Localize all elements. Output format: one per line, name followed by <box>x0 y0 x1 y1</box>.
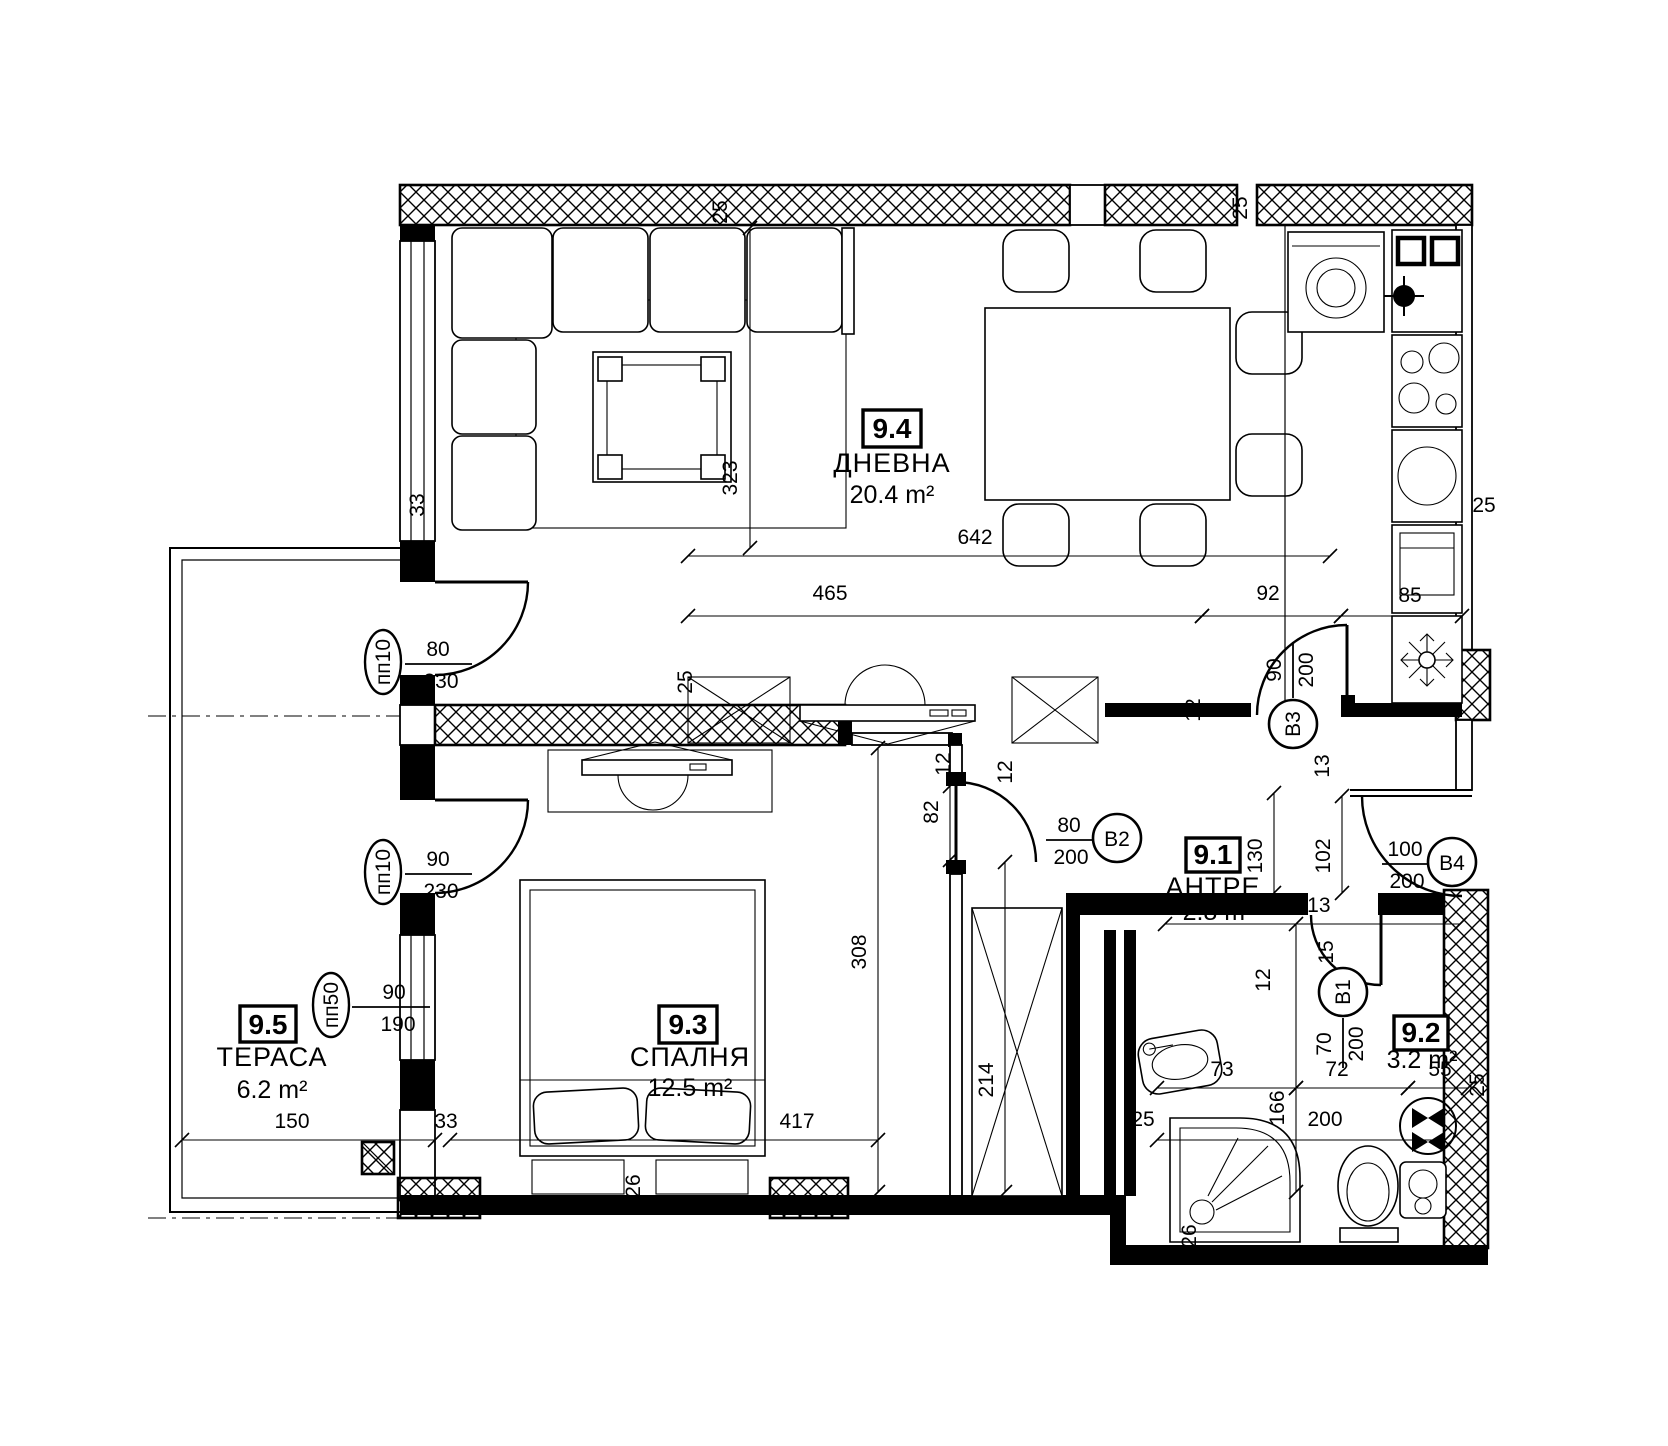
nightstand <box>532 1160 624 1194</box>
tag-height: 230 <box>423 670 458 693</box>
bottom-pier-left <box>398 1178 480 1218</box>
tag-id: пп10 <box>372 849 395 895</box>
dim-label: 12 <box>1143 894 1166 917</box>
tag-height: 200 <box>1295 652 1318 687</box>
dim-label: 55 <box>1428 1058 1451 1081</box>
room-id: 9.4 <box>873 413 912 444</box>
chair <box>1003 230 1069 292</box>
dim-label: 12 <box>1182 698 1205 721</box>
tag-id: B3 <box>1282 711 1305 737</box>
door-tag-b1: B1 70 200 <box>1313 968 1368 1068</box>
stove-icon <box>1392 335 1462 427</box>
dim-label: 417 <box>779 1110 814 1133</box>
tag-id: пп50 <box>320 982 343 1028</box>
dim-label: 12 <box>1252 968 1275 991</box>
bottom-pier-mid <box>770 1178 848 1218</box>
coffee-table <box>593 352 731 482</box>
tag-id: B2 <box>1104 828 1130 851</box>
dim-label: 323 <box>719 460 742 495</box>
dim-label: 308 <box>848 934 871 969</box>
dim-label: 102 <box>1312 838 1335 873</box>
top-wall-mid <box>1105 185 1237 225</box>
room-label-terrace: 9.5 ТЕРАСА 6.2 m² <box>216 1006 327 1104</box>
dim-label: 15 <box>1315 940 1338 963</box>
terrace-drain-icon <box>362 1142 394 1174</box>
dim-label: 25 <box>1131 1108 1154 1131</box>
pillow <box>533 1087 640 1144</box>
door-b2 <box>956 782 1036 862</box>
shower-icon <box>1170 1118 1300 1242</box>
dim-label: 465 <box>812 582 847 605</box>
tag-width: 90 <box>1263 658 1286 681</box>
balcony-door-living <box>435 582 528 675</box>
dim-label: 642 <box>957 526 992 549</box>
dim-label: 25 <box>709 200 732 223</box>
tag-id: B1 <box>1332 979 1355 1005</box>
dim-label: 12 <box>994 760 1017 783</box>
tag-width: 90 <box>382 981 405 1004</box>
door-tag-b2: B2 80 200 <box>1046 814 1141 869</box>
chair <box>1236 434 1302 496</box>
dim-label: 26 <box>1178 1224 1201 1247</box>
dining-table <box>985 230 1302 566</box>
room-id: 9.5 <box>249 1009 288 1040</box>
dim-label: 92 <box>1256 582 1279 605</box>
chair <box>1140 504 1206 566</box>
wardrobe <box>972 908 1062 1196</box>
dim-label: 85 <box>1398 584 1421 607</box>
room-name: СПАЛНЯ <box>630 1042 750 1072</box>
room-id: 9.3 <box>669 1009 708 1040</box>
room-id: 9.1 <box>1194 839 1233 870</box>
tv-cabinet-right <box>1012 677 1098 743</box>
tag-height: 190 <box>380 1013 415 1036</box>
dim-label: 130 <box>1244 838 1267 873</box>
tag-height: 200 <box>1389 870 1424 893</box>
dim-label: 82 <box>920 800 943 823</box>
furniture-bedroom <box>520 742 772 1194</box>
floor-plan-page: 9.4 ДНЕВНА 20.4 m² 9.3 СПАЛНЯ 12.5 m² 9.… <box>0 0 1668 1446</box>
room-name: ДНЕВНА <box>833 448 950 478</box>
dim-label: 166 <box>1266 1090 1289 1125</box>
room-id: 9.2 <box>1402 1017 1441 1048</box>
room-area: 6.2 m² <box>237 1076 308 1104</box>
right-wall-entry <box>1456 720 1472 790</box>
tag-width: 90 <box>426 848 449 871</box>
dim-label: 25 <box>1229 196 1252 219</box>
chair <box>1140 230 1206 292</box>
dim-label: 200 <box>1307 1108 1342 1131</box>
pipe-shaft <box>1104 930 1116 1196</box>
bottom-wall <box>400 1195 1124 1215</box>
dim-label: 13 <box>1311 754 1334 777</box>
opening-tags: пп10 80 230 пп10 90 230 пп50 90 190 B2 8… <box>313 630 1476 1068</box>
fridge-snowflake-icon <box>1392 616 1462 703</box>
room-area: 12.5 m² <box>648 1074 733 1102</box>
tag-height: 200 <box>1053 846 1088 869</box>
toilet-icon <box>1338 1146 1398 1242</box>
top-wall-right <box>1257 185 1472 225</box>
dim-label: 33 <box>406 493 429 516</box>
bedroom-dresser-tv <box>548 742 772 812</box>
tag-height: 230 <box>423 880 458 903</box>
wall-joint-left <box>400 705 435 745</box>
door-tag-b3: B3 90 200 <box>1263 642 1318 748</box>
door-tag-b4: B4 100 200 <box>1382 838 1476 893</box>
dim-label: 12 <box>932 752 955 775</box>
tag-height: 200 <box>1345 1026 1368 1061</box>
top-wall-left <box>400 185 1070 225</box>
tag-width: 70 <box>1313 1032 1336 1055</box>
floor-plan-canvas: 9.4 ДНЕВНА 20.4 m² 9.3 СПАЛНЯ 12.5 m² 9.… <box>0 0 1668 1446</box>
room-area: 20.4 m² <box>850 481 935 509</box>
kitchen-sink-icon <box>1384 230 1462 332</box>
tag-width: 100 <box>1387 838 1422 861</box>
dim-label: 25 <box>674 670 697 693</box>
room-name: ТЕРАСА <box>216 1042 327 1072</box>
dim-label: 25 <box>1466 1073 1489 1096</box>
dim-label: 26 <box>622 1174 645 1197</box>
dim-label: 214 <box>975 1062 998 1097</box>
tag-id: пп10 <box>372 639 395 685</box>
room-label-living: 9.4 ДНЕВНА 20.4 m² <box>833 410 950 509</box>
top-wall-joint <box>1070 185 1105 225</box>
nightstand <box>656 1160 748 1194</box>
tag-width: 80 <box>426 638 449 661</box>
tag-width: 80 <box>1057 814 1080 837</box>
dim-label: 72 <box>1325 1058 1348 1081</box>
chair <box>1003 504 1069 566</box>
boiler-icon <box>1400 1162 1446 1218</box>
bed <box>520 880 765 1156</box>
dim-label: 213 <box>1295 894 1330 917</box>
round-basin-icon <box>1392 430 1462 522</box>
dim-label: 150 <box>274 1110 309 1133</box>
dim-label: 33 <box>434 1110 457 1133</box>
dim-label: 25 <box>1472 494 1495 517</box>
washing-machine-icon <box>1288 232 1384 332</box>
room-area: 2.8 m² <box>1183 898 1254 926</box>
dim-label: 73 <box>1210 1058 1233 1081</box>
tag-id: B4 <box>1439 852 1465 875</box>
